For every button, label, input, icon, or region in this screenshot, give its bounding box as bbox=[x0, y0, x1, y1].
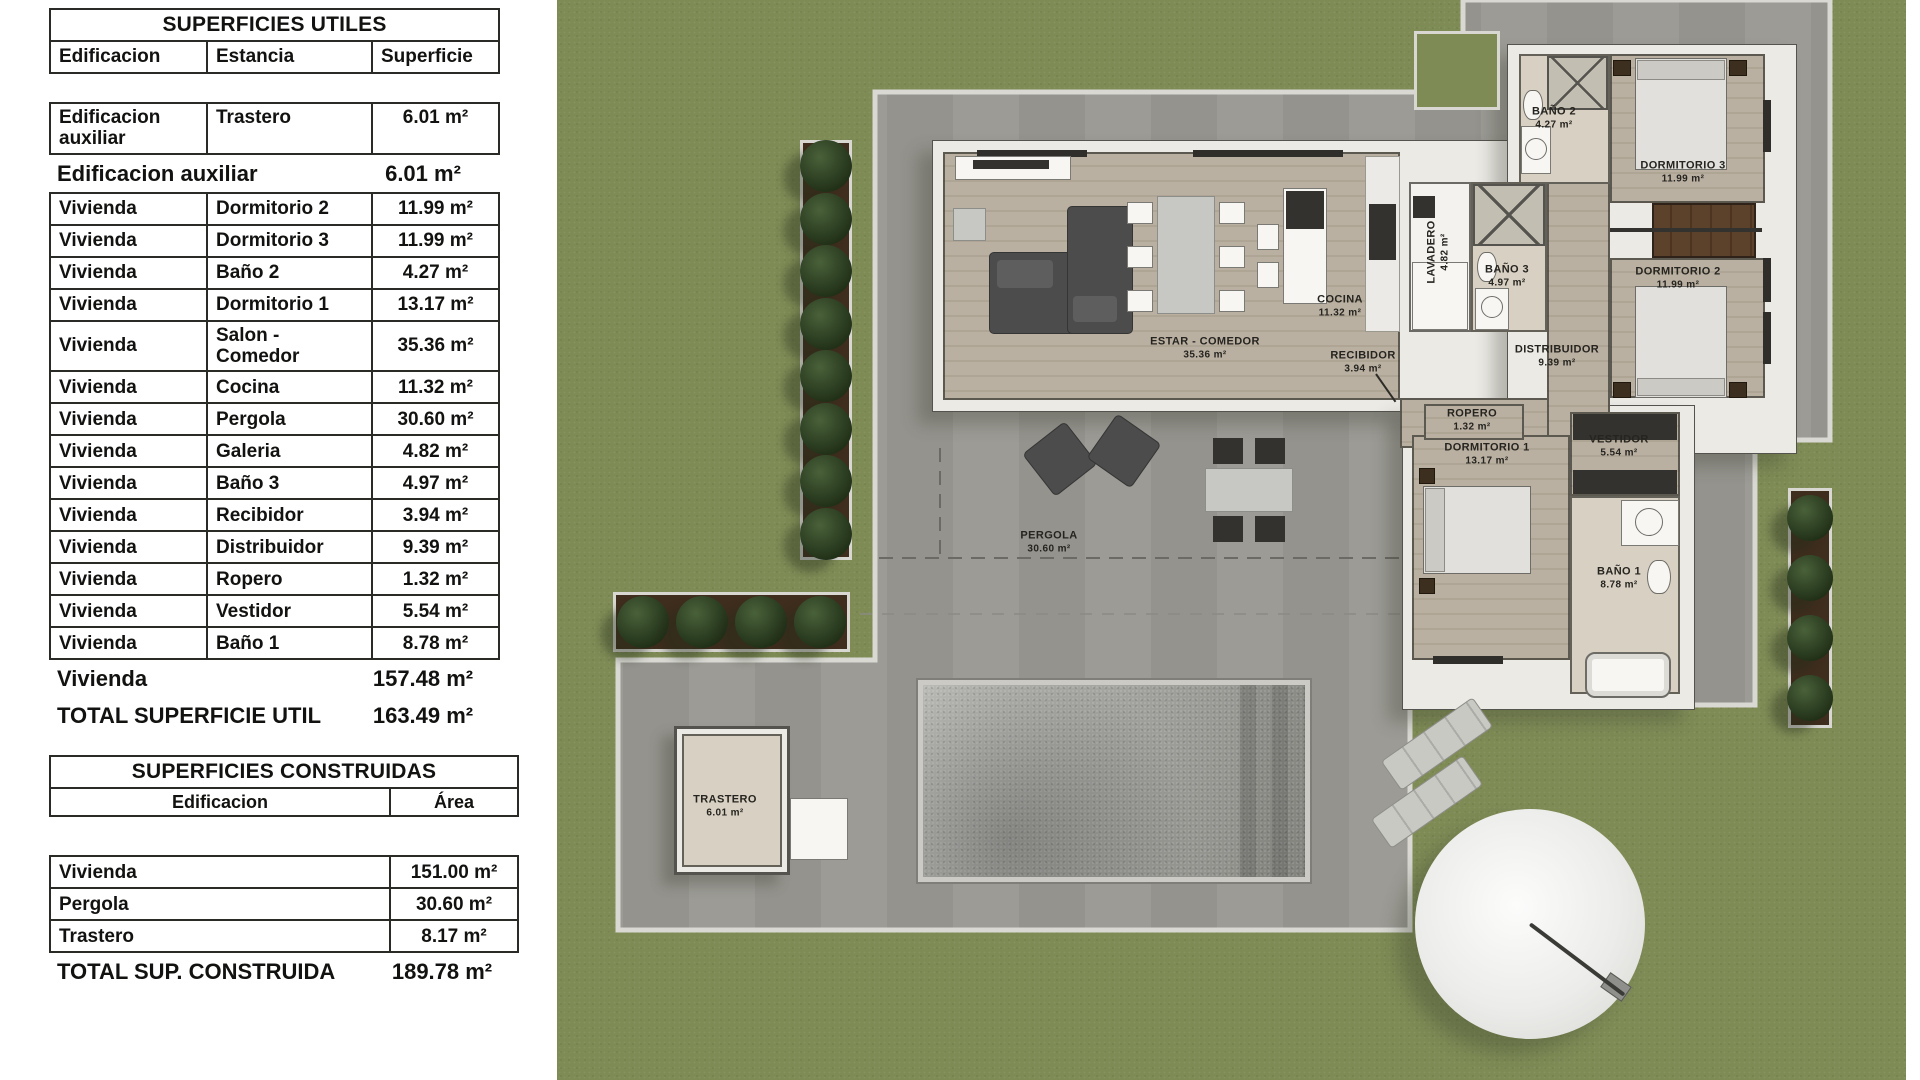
utiles-col-superficie: Superficie bbox=[372, 41, 499, 73]
bush-icon bbox=[800, 403, 852, 455]
window bbox=[1433, 656, 1503, 664]
stove bbox=[1286, 191, 1324, 229]
room-name: DORMITORIO 3 bbox=[1640, 158, 1725, 172]
pergola-table bbox=[1205, 468, 1293, 512]
sink bbox=[1635, 508, 1663, 536]
utiles-total-value: 163.49 m² bbox=[348, 704, 498, 728]
pergola-chair bbox=[1213, 438, 1243, 464]
room-area: 11.99 m² bbox=[1635, 279, 1720, 292]
construidas-col-area: Área bbox=[390, 788, 518, 816]
pool-steps bbox=[1240, 685, 1305, 877]
room-name: LAVADERO bbox=[1424, 220, 1438, 283]
wardrobe-rail bbox=[1610, 228, 1762, 232]
toilet bbox=[1647, 560, 1671, 594]
superficies-construidas-table: SUPERFICIES CONSTRUIDAS Edificacion Área… bbox=[49, 755, 517, 990]
table-cell: Dormitorio 3 bbox=[207, 225, 372, 257]
room-area: 11.32 m² bbox=[1317, 307, 1363, 320]
room-name: BAÑO 1 bbox=[1597, 564, 1641, 578]
dining-table bbox=[1157, 196, 1215, 314]
table-row: ViviendaDormitorio 113.17 m² bbox=[50, 289, 499, 321]
construidas-total-label: TOTAL SUP. CONSTRUIDA bbox=[57, 960, 335, 984]
room-label-dormitorio-1: DORMITORIO 113.17 m² bbox=[1444, 440, 1529, 467]
room-area: 8.78 m² bbox=[1597, 579, 1641, 592]
pergola-chair bbox=[1255, 516, 1285, 542]
dining-chair bbox=[1127, 246, 1153, 268]
pergola-chair bbox=[1213, 516, 1243, 542]
site-plan: ESTAR - COMEDOR35.36 m²COCINA11.32 m²REC… bbox=[557, 0, 1906, 1080]
construidas-total-row: TOTAL SUP. CONSTRUIDA 189.78 m² bbox=[49, 953, 517, 990]
table-row: Trastero8.17 m² bbox=[50, 920, 518, 952]
room-distribuidor bbox=[1547, 182, 1610, 448]
room-area: 4.82 m² bbox=[1439, 220, 1452, 283]
construidas-title: SUPERFICIES CONSTRUIDAS bbox=[50, 756, 518, 788]
room-name: TRASTERO bbox=[693, 792, 757, 806]
room-area: 6.01 m² bbox=[693, 807, 757, 820]
bush-icon bbox=[800, 193, 852, 245]
sofa-cushion bbox=[997, 260, 1053, 288]
bed-pillows bbox=[1425, 488, 1445, 572]
patio-garden bbox=[1414, 31, 1500, 110]
table-cell: 8.17 m² bbox=[390, 920, 518, 952]
nightstand bbox=[1613, 60, 1631, 76]
room-name: BAÑO 2 bbox=[1532, 104, 1576, 118]
table-cell: 151.00 m² bbox=[390, 856, 518, 888]
room-area: 13.17 m² bbox=[1444, 455, 1529, 468]
side-table bbox=[953, 208, 986, 241]
superficies-utiles-table: SUPERFICIES UTILES Edificacion Estancia … bbox=[49, 8, 498, 735]
nightstand bbox=[1729, 60, 1747, 76]
table-cell: Distribuidor bbox=[207, 531, 372, 563]
areas-panel: SUPERFICIES UTILES Edificacion Estancia … bbox=[0, 0, 557, 1080]
washer bbox=[1413, 196, 1435, 218]
vivienda-subtotal-value: 157.48 m² bbox=[348, 667, 498, 691]
bush-icon bbox=[800, 455, 852, 507]
table-cell: 1.32 m² bbox=[372, 563, 499, 595]
room-name: ESTAR - COMEDOR bbox=[1150, 334, 1260, 348]
aux-subtotal-row: Edificacion auxiliar 6.01 m² bbox=[49, 155, 498, 192]
room-area: 9.39 m² bbox=[1515, 357, 1599, 370]
bush-icon bbox=[676, 596, 728, 648]
room-label-ropero: ROPERO1.32 m² bbox=[1447, 406, 1497, 433]
table-cell: Vivienda bbox=[50, 321, 207, 372]
bush-icon bbox=[794, 596, 846, 648]
nightstand bbox=[1419, 578, 1435, 594]
room-label-dormitorio-2: DORMITORIO 211.99 m² bbox=[1635, 264, 1720, 291]
nightstand bbox=[1419, 468, 1435, 484]
room-label-bano-3: BAÑO 34.97 m² bbox=[1485, 262, 1529, 289]
table-row: ViviendaDistribuidor9.39 m² bbox=[50, 531, 499, 563]
shower bbox=[1547, 56, 1608, 110]
bathtub bbox=[1585, 652, 1671, 698]
table-cell: 5.54 m² bbox=[372, 595, 499, 627]
room-label-trastero: TRASTERO6.01 m² bbox=[693, 792, 757, 819]
sofa-cushion bbox=[1073, 296, 1117, 322]
construidas-header-table: SUPERFICIES CONSTRUIDAS Edificacion Área bbox=[49, 755, 519, 817]
table-cell: Vivienda bbox=[50, 403, 207, 435]
tv bbox=[973, 160, 1049, 169]
utiles-total-row: TOTAL SUPERFICIE UTIL 163.49 m² bbox=[49, 697, 498, 734]
room-area: 3.94 m² bbox=[1330, 363, 1395, 376]
table-cell: 11.32 m² bbox=[372, 371, 499, 403]
bush-icon bbox=[1787, 615, 1833, 661]
table-row: ViviendaBaño 18.78 m² bbox=[50, 627, 499, 659]
table-cell: Vestidor bbox=[207, 595, 372, 627]
table-cell: 4.27 m² bbox=[372, 257, 499, 289]
room-label-vestidor: VESTIDOR5.54 m² bbox=[1589, 432, 1648, 459]
aux-estancia: Trastero bbox=[207, 103, 372, 154]
construidas-col-edificacion: Edificacion bbox=[50, 788, 390, 816]
room-name: RECIBIDOR bbox=[1330, 348, 1395, 362]
shower bbox=[1473, 184, 1545, 246]
room-area: 1.32 m² bbox=[1447, 421, 1497, 434]
dining-chair bbox=[1219, 202, 1245, 224]
table-cell: Trastero bbox=[50, 920, 390, 952]
window bbox=[1763, 312, 1771, 364]
table-row: Vivienda151.00 m² bbox=[50, 856, 518, 888]
utiles-col-edificacion: Edificacion bbox=[50, 41, 207, 73]
table-row: ViviendaVestidor5.54 m² bbox=[50, 595, 499, 627]
sink bbox=[1481, 296, 1503, 318]
aux-subtotal-label: Edificacion auxiliar bbox=[57, 162, 258, 186]
table-cell: Baño 1 bbox=[207, 627, 372, 659]
table-cell: Cocina bbox=[207, 371, 372, 403]
bush-icon bbox=[800, 298, 852, 350]
table-cell: Dormitorio 1 bbox=[207, 289, 372, 321]
room-area: 35.36 m² bbox=[1150, 349, 1260, 362]
room-name: DORMITORIO 1 bbox=[1444, 440, 1529, 454]
table-cell: 30.60 m² bbox=[372, 403, 499, 435]
vivienda-subtotal-row: Vivienda 157.48 m² bbox=[49, 660, 498, 697]
construidas-rows-table: Vivienda151.00 m²Pergola30.60 m²Trastero… bbox=[49, 855, 519, 953]
room-label-pergola: PERGOLA30.60 m² bbox=[1020, 528, 1077, 555]
pergola-chair bbox=[1255, 438, 1285, 464]
window bbox=[1763, 100, 1771, 152]
utiles-title: SUPERFICIES UTILES bbox=[50, 9, 499, 41]
table-cell: Pergola bbox=[207, 403, 372, 435]
sink bbox=[1525, 138, 1547, 160]
table-row: ViviendaBaño 24.27 m² bbox=[50, 257, 499, 289]
room-label-distribuidor: DISTRIBUIDOR9.39 m² bbox=[1515, 342, 1599, 369]
table-cell: Vivienda bbox=[50, 856, 390, 888]
closet bbox=[1573, 470, 1677, 494]
table-cell: Vivienda bbox=[50, 257, 207, 289]
room-area: 30.60 m² bbox=[1020, 543, 1077, 556]
floor-plan-page: { "tables": { "utiles": { "title": "SUPE… bbox=[0, 0, 1920, 1080]
table-cell: Vivienda bbox=[50, 595, 207, 627]
room-area: 4.97 m² bbox=[1485, 277, 1529, 290]
table-row: ViviendaBaño 34.97 m² bbox=[50, 467, 499, 499]
room-name: ROPERO bbox=[1447, 406, 1497, 420]
stool bbox=[1257, 262, 1279, 288]
room-label-lavadero: LAVADERO4.82 m² bbox=[1424, 220, 1451, 283]
room-name: DISTRIBUIDOR bbox=[1515, 342, 1599, 356]
table-cell: Dormitorio 2 bbox=[207, 193, 372, 225]
bush-icon bbox=[800, 508, 852, 560]
table-cell: Vivienda bbox=[50, 499, 207, 531]
utiles-header-table: SUPERFICIES UTILES Edificacion Estancia … bbox=[49, 8, 500, 74]
utiles-total-label: TOTAL SUPERFICIE UTIL bbox=[57, 704, 321, 728]
table-cell: 35.36 m² bbox=[372, 321, 499, 372]
table-cell: 9.39 m² bbox=[372, 531, 499, 563]
table-row: ViviendaRecibidor3.94 m² bbox=[50, 499, 499, 531]
room-name: DORMITORIO 2 bbox=[1635, 264, 1720, 278]
bed-pillows bbox=[1637, 60, 1725, 80]
room-area: 4.27 m² bbox=[1532, 119, 1576, 132]
bush-icon bbox=[800, 350, 852, 402]
table-cell: 11.99 m² bbox=[372, 193, 499, 225]
room-label-dormitorio-3: DORMITORIO 311.99 m² bbox=[1640, 158, 1725, 185]
utiles-aux-table: Edificacion auxiliar Trastero 6.01 m² bbox=[49, 102, 500, 155]
table-row: ViviendaSalon - Comedor35.36 m² bbox=[50, 321, 499, 372]
stool bbox=[1257, 224, 1279, 250]
room-label-cocina: COCINA11.32 m² bbox=[1317, 292, 1363, 319]
construidas-total-value: 189.78 m² bbox=[367, 960, 517, 984]
trastero-pad bbox=[790, 798, 848, 860]
table-cell: Salon - Comedor bbox=[207, 321, 372, 372]
table-cell: Vivienda bbox=[50, 467, 207, 499]
table-cell: Recibidor bbox=[207, 499, 372, 531]
aux-subtotal-value: 6.01 m² bbox=[348, 162, 498, 186]
table-cell: Vivienda bbox=[50, 531, 207, 563]
room-label-estar-comedor: ESTAR - COMEDOR35.36 m² bbox=[1150, 334, 1260, 361]
table-cell: Vivienda bbox=[50, 193, 207, 225]
table-cell: 8.78 m² bbox=[372, 627, 499, 659]
table-row: ViviendaRopero1.32 m² bbox=[50, 563, 499, 595]
table-cell: Baño 2 bbox=[207, 257, 372, 289]
table-cell: Vivienda bbox=[50, 435, 207, 467]
dining-chair bbox=[1219, 246, 1245, 268]
room-label-bano-2: BAÑO 24.27 m² bbox=[1532, 104, 1576, 131]
table-cell: Vivienda bbox=[50, 563, 207, 595]
table-cell: 4.97 m² bbox=[372, 467, 499, 499]
room-name: VESTIDOR bbox=[1589, 432, 1648, 446]
table-cell: 13.17 m² bbox=[372, 289, 499, 321]
room-label-bano-1: BAÑO 18.78 m² bbox=[1597, 564, 1641, 591]
table-row: ViviendaGaleria4.82 m² bbox=[50, 435, 499, 467]
bush-icon bbox=[800, 140, 852, 192]
dining-chair bbox=[1127, 290, 1153, 312]
dining-chair bbox=[1127, 202, 1153, 224]
table-cell: 3.94 m² bbox=[372, 499, 499, 531]
nightstand bbox=[1729, 382, 1747, 398]
room-area: 11.99 m² bbox=[1640, 173, 1725, 186]
bush-icon bbox=[1787, 675, 1833, 721]
bush-icon bbox=[1787, 555, 1833, 601]
table-cell: Vivienda bbox=[50, 289, 207, 321]
table-cell: Galeria bbox=[207, 435, 372, 467]
utiles-col-estancia: Estancia bbox=[207, 41, 372, 73]
table-cell: Ropero bbox=[207, 563, 372, 595]
table-row: ViviendaDormitorio 211.99 m² bbox=[50, 193, 499, 225]
dining-chair bbox=[1219, 290, 1245, 312]
table-row: ViviendaPergola30.60 m² bbox=[50, 403, 499, 435]
bush-icon bbox=[617, 596, 669, 648]
table-cell: 30.60 m² bbox=[390, 888, 518, 920]
table-row: ViviendaDormitorio 311.99 m² bbox=[50, 225, 499, 257]
kitchen-sink bbox=[1369, 204, 1396, 260]
aux-superficie: 6.01 m² bbox=[372, 103, 499, 154]
room-name: COCINA bbox=[1317, 292, 1363, 306]
table-cell: Baño 3 bbox=[207, 467, 372, 499]
table-cell: Vivienda bbox=[50, 225, 207, 257]
window bbox=[1763, 258, 1771, 302]
aux-edificacion: Edificacion auxiliar bbox=[50, 103, 207, 154]
room-label-recibidor: RECIBIDOR3.94 m² bbox=[1330, 348, 1395, 375]
nightstand bbox=[1613, 382, 1631, 398]
table-row: ViviendaCocina11.32 m² bbox=[50, 371, 499, 403]
table-cell: Vivienda bbox=[50, 371, 207, 403]
table-cell: 4.82 m² bbox=[372, 435, 499, 467]
table-cell: 11.99 m² bbox=[372, 225, 499, 257]
window bbox=[1193, 150, 1343, 157]
table-cell: Vivienda bbox=[50, 627, 207, 659]
room-area: 5.54 m² bbox=[1589, 447, 1648, 460]
bed-pillows bbox=[1637, 378, 1725, 396]
bush-icon bbox=[800, 245, 852, 297]
table-cell: Pergola bbox=[50, 888, 390, 920]
utiles-rows-table: ViviendaDormitorio 211.99 m²ViviendaDorm… bbox=[49, 192, 500, 661]
bush-icon bbox=[1787, 495, 1833, 541]
vivienda-subtotal-label: Vivienda bbox=[57, 667, 147, 691]
room-name: BAÑO 3 bbox=[1485, 262, 1529, 276]
bush-icon bbox=[735, 596, 787, 648]
table-row: Pergola30.60 m² bbox=[50, 888, 518, 920]
room-name: PERGOLA bbox=[1020, 528, 1077, 542]
